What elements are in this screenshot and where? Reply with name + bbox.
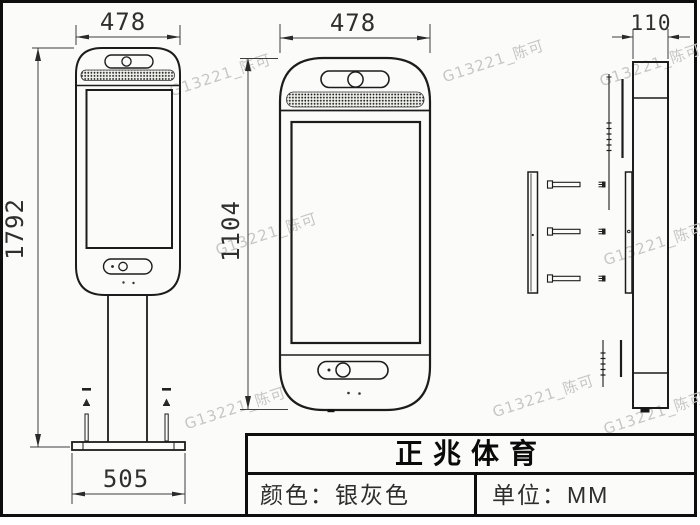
title-block-spec-row: 颜色：银灰色 单位：MM: [248, 475, 694, 515]
title-block: 正兆体育 颜色：银灰色 单位：MM: [245, 433, 697, 517]
dim-base-width: 505: [72, 453, 185, 504]
anchor-bolt-left: [82, 388, 91, 441]
watermark: G13221_陈可: [182, 383, 289, 434]
watermark: G13221_陈可: [601, 388, 700, 439]
dim-label-110: 110: [631, 11, 672, 35]
mount-bolt: [548, 181, 581, 188]
drawing-sheet: G13221_陈可 G13221_陈可 G13221_陈可 G13221_陈可 …: [0, 0, 700, 525]
indicator-dot: [328, 369, 331, 372]
front-view-full-kiosk: 478 1792 505: [1, 8, 185, 504]
side-foot: [641, 408, 650, 413]
watermark: G13221_陈可: [490, 371, 597, 422]
base-plate: [72, 442, 185, 450]
camera-lens-icon: [348, 72, 363, 87]
mount-bracket-bar: [528, 172, 538, 293]
display-screen: [292, 122, 421, 343]
lower-mount-screws: [601, 340, 622, 387]
dim-label-505: 505: [103, 465, 149, 493]
sensor-lens-icon: [119, 262, 127, 270]
color-spec: 颜色：银灰色: [248, 475, 477, 515]
watermark: G13221_陈可: [440, 36, 547, 87]
vent-dot: [122, 281, 124, 283]
watermarks: G13221_陈可 G13221_陈可 G13221_陈可 G13221_陈可 …: [167, 36, 700, 439]
dim-label-478: 478: [100, 8, 146, 36]
screw-head: [599, 229, 606, 235]
mount-plate: [626, 172, 633, 293]
indicator-dot: [111, 265, 114, 268]
dim-label-1104: 1104: [217, 200, 245, 262]
dim-label-1792: 1792: [1, 198, 29, 260]
screw-head: [599, 276, 606, 282]
display-screen: [87, 90, 173, 248]
camera-lens-icon: [122, 57, 131, 66]
sensor-lens-icon: [336, 363, 350, 377]
mount-bolt: [548, 228, 581, 235]
bottom-notch: [328, 409, 335, 412]
vent-dot: [132, 282, 134, 284]
speaker-grille: [287, 92, 425, 107]
dim-unit-width: 478: [280, 9, 430, 53]
vent-dot: [347, 392, 350, 395]
dim-front-full-width: 478: [76, 8, 180, 45]
anchor-bolt-right: [162, 388, 171, 441]
vent-dot: [358, 392, 361, 395]
camera-pill: [321, 71, 389, 88]
unit-spec: 单位：MM: [477, 475, 694, 515]
mount-bolt: [548, 275, 581, 282]
brand-title: 正兆体育: [248, 436, 694, 475]
front-view-unit: 478 1104: [217, 9, 430, 412]
dim-label-478: 478: [330, 9, 376, 37]
watermark: G13221_陈可: [601, 219, 700, 270]
speaker-grille: [81, 70, 175, 81]
watermark: G13221_陈可: [167, 50, 274, 101]
dim-front-full-height: 1792: [1, 48, 74, 447]
watermark: G13221_陈可: [597, 40, 700, 91]
upper-mount-screws: [607, 74, 623, 210]
screw-head: [599, 182, 606, 188]
